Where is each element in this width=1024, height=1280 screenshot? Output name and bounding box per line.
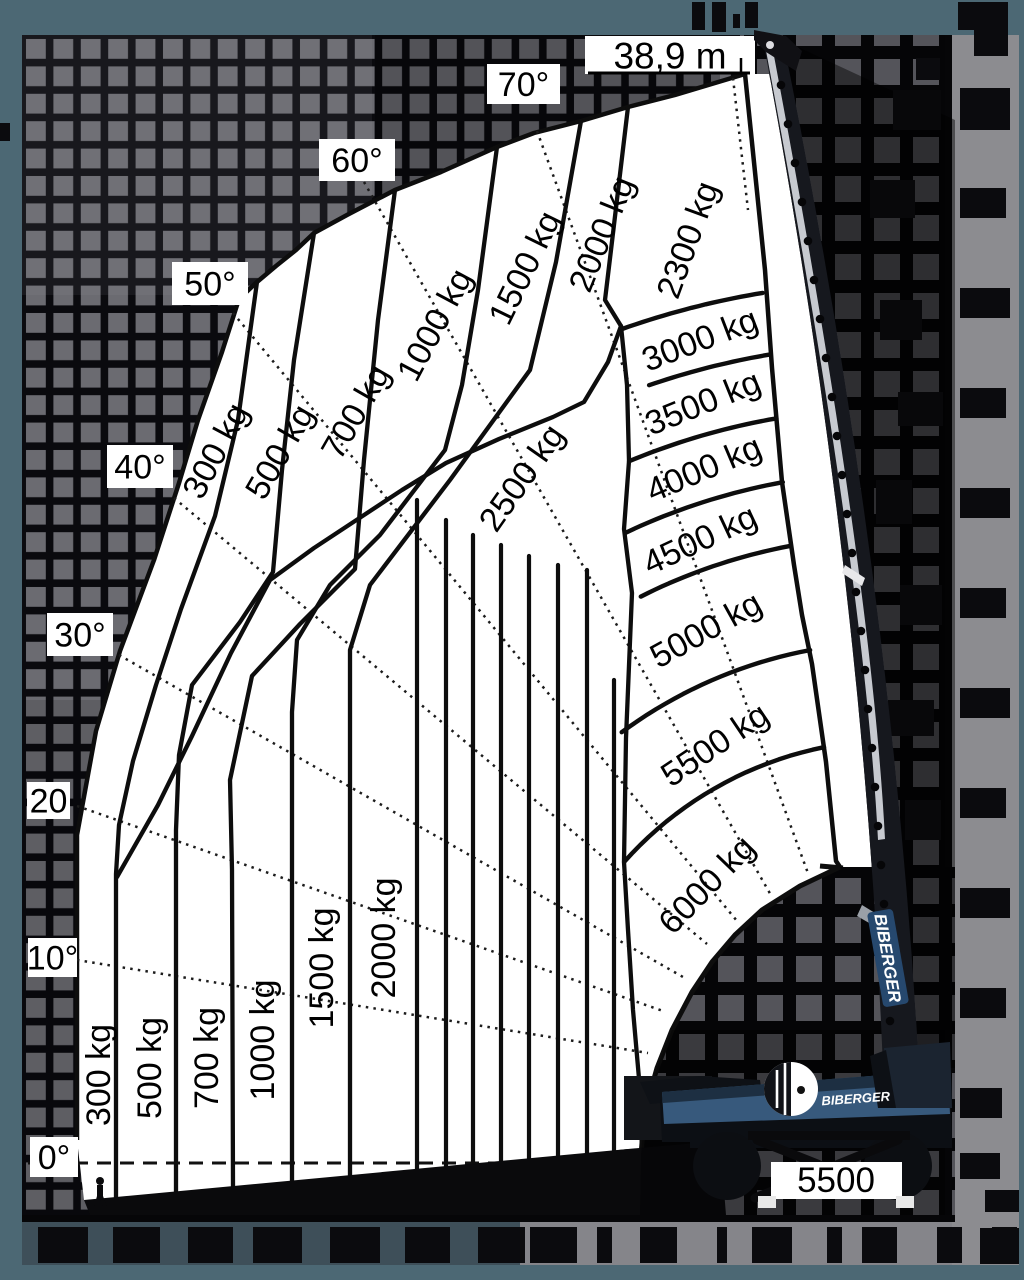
svg-text:700 kg: 700 kg (188, 1007, 226, 1109)
svg-text:500 kg: 500 kg (131, 1017, 169, 1119)
svg-text:5500: 5500 (797, 1161, 875, 1200)
svg-text:30°: 30° (54, 617, 105, 655)
svg-text:40°: 40° (114, 449, 165, 487)
svg-text:50°: 50° (184, 266, 235, 304)
svg-text:0°: 0° (38, 1139, 71, 1177)
svg-text:38,9 m: 38,9 m (613, 36, 726, 77)
svg-text:300 kg: 300 kg (80, 1024, 118, 1126)
svg-text:1000 kg: 1000 kg (244, 980, 282, 1101)
svg-text:10°: 10° (27, 940, 78, 978)
svg-text:20: 20 (30, 783, 68, 821)
svg-text:2000 kg: 2000 kg (365, 878, 403, 999)
svg-text:60°: 60° (331, 142, 382, 180)
svg-text:1500 kg: 1500 kg (303, 908, 341, 1029)
svg-text:70°: 70° (498, 66, 549, 104)
